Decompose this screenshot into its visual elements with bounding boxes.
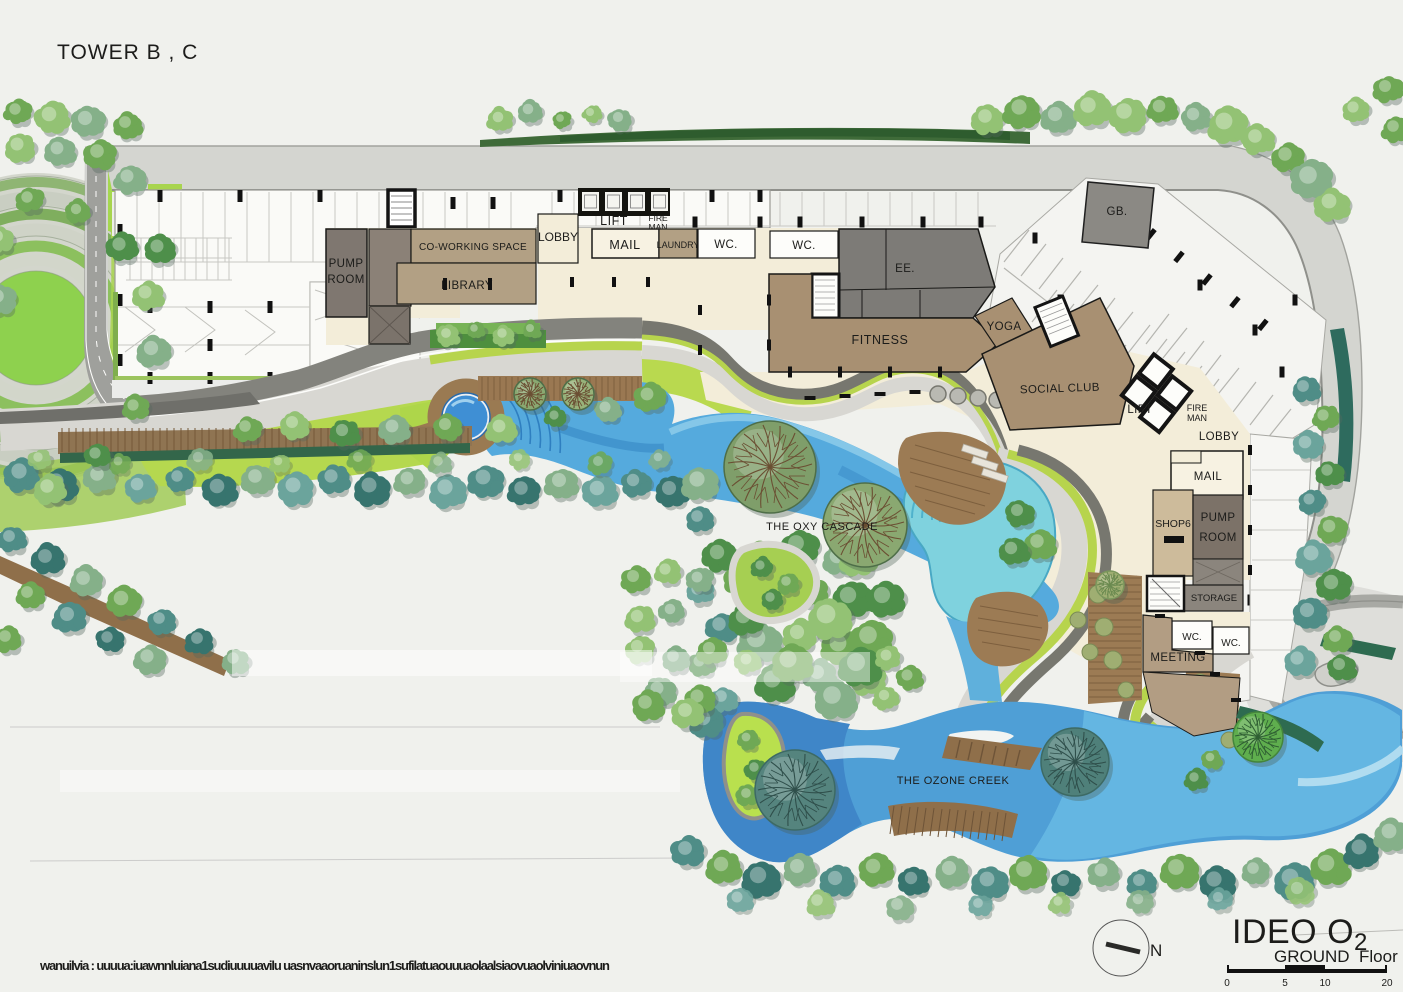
- svg-text:GB.: GB.: [1106, 206, 1127, 218]
- svg-text:WC.: WC.: [714, 239, 738, 251]
- svg-text:SHOP6: SHOP6: [1155, 518, 1191, 530]
- svg-text:ROOM: ROOM: [1199, 532, 1236, 544]
- svg-text:LAUNDRY: LAUNDRY: [657, 240, 700, 250]
- svg-text:EE.: EE.: [895, 263, 915, 275]
- svg-text:LOBBY: LOBBY: [538, 230, 578, 244]
- svg-text:PUMP: PUMP: [1201, 512, 1236, 524]
- svg-text:LIFT: LIFT: [1127, 404, 1152, 416]
- svg-text:THE OZONE CREEK: THE OZONE CREEK: [897, 775, 1010, 787]
- svg-text:ROOM: ROOM: [327, 274, 364, 286]
- svg-text:TOWER B , C: TOWER B , C: [57, 41, 198, 64]
- svg-text:FIRE: FIRE: [1187, 403, 1208, 413]
- svg-text:WC.: WC.: [792, 240, 816, 252]
- svg-text:PUMP: PUMP: [329, 258, 364, 270]
- svg-text:MAIL: MAIL: [1194, 471, 1223, 483]
- svg-text:LIFT: LIFT: [600, 214, 628, 228]
- svg-text:MAIL: MAIL: [609, 238, 640, 252]
- svg-text:WC.: WC.: [1221, 638, 1240, 649]
- svg-text:THE OXY CASCADE: THE OXY CASCADE: [766, 521, 878, 533]
- svg-text:FITNESS: FITNESS: [852, 333, 909, 347]
- svg-text:LIBRARY: LIBRARY: [441, 280, 493, 292]
- svg-text:GROUND Floor: GROUND Floor: [1274, 947, 1398, 966]
- svg-text:MAN: MAN: [1187, 413, 1207, 423]
- svg-text:5: 5: [1282, 978, 1288, 989]
- svg-text:20: 20: [1381, 978, 1393, 989]
- svg-text:LOBBY: LOBBY: [1199, 431, 1239, 443]
- svg-text:YOGA: YOGA: [987, 321, 1022, 333]
- svg-text:CO-WORKING SPACE: CO-WORKING SPACE: [419, 242, 527, 253]
- svg-text:WC.: WC.: [1182, 632, 1201, 643]
- svg-text:N: N: [1150, 941, 1162, 960]
- svg-text:wanuilvia : uuuua:iuawnnluiana: wanuilvia : uuuua:iuawnnluiana1sudiuuuua…: [39, 958, 610, 973]
- svg-text:0: 0: [1224, 978, 1230, 989]
- svg-text:STORAGE: STORAGE: [1191, 593, 1237, 604]
- svg-text:10: 10: [1319, 978, 1331, 989]
